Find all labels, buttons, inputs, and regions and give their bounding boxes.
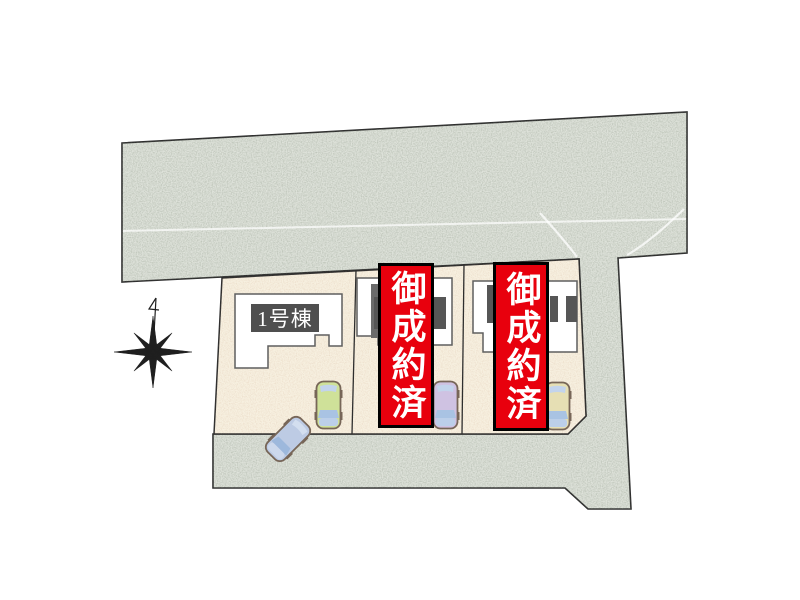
house-3-window-a [550,296,558,322]
site-plan-canvas: 1号棟 御成約済 御成約済 [0,0,800,600]
car-green-icon [315,382,343,429]
sold-banner-lot2: 御成約済 [378,263,434,428]
building-1-label: 1号棟 [251,304,319,332]
car-purple-icon [432,382,460,429]
house-3-window-b [566,296,577,322]
sold-banner-lot3: 御成約済 [493,262,549,431]
compass-rose-icon [114,298,192,390]
